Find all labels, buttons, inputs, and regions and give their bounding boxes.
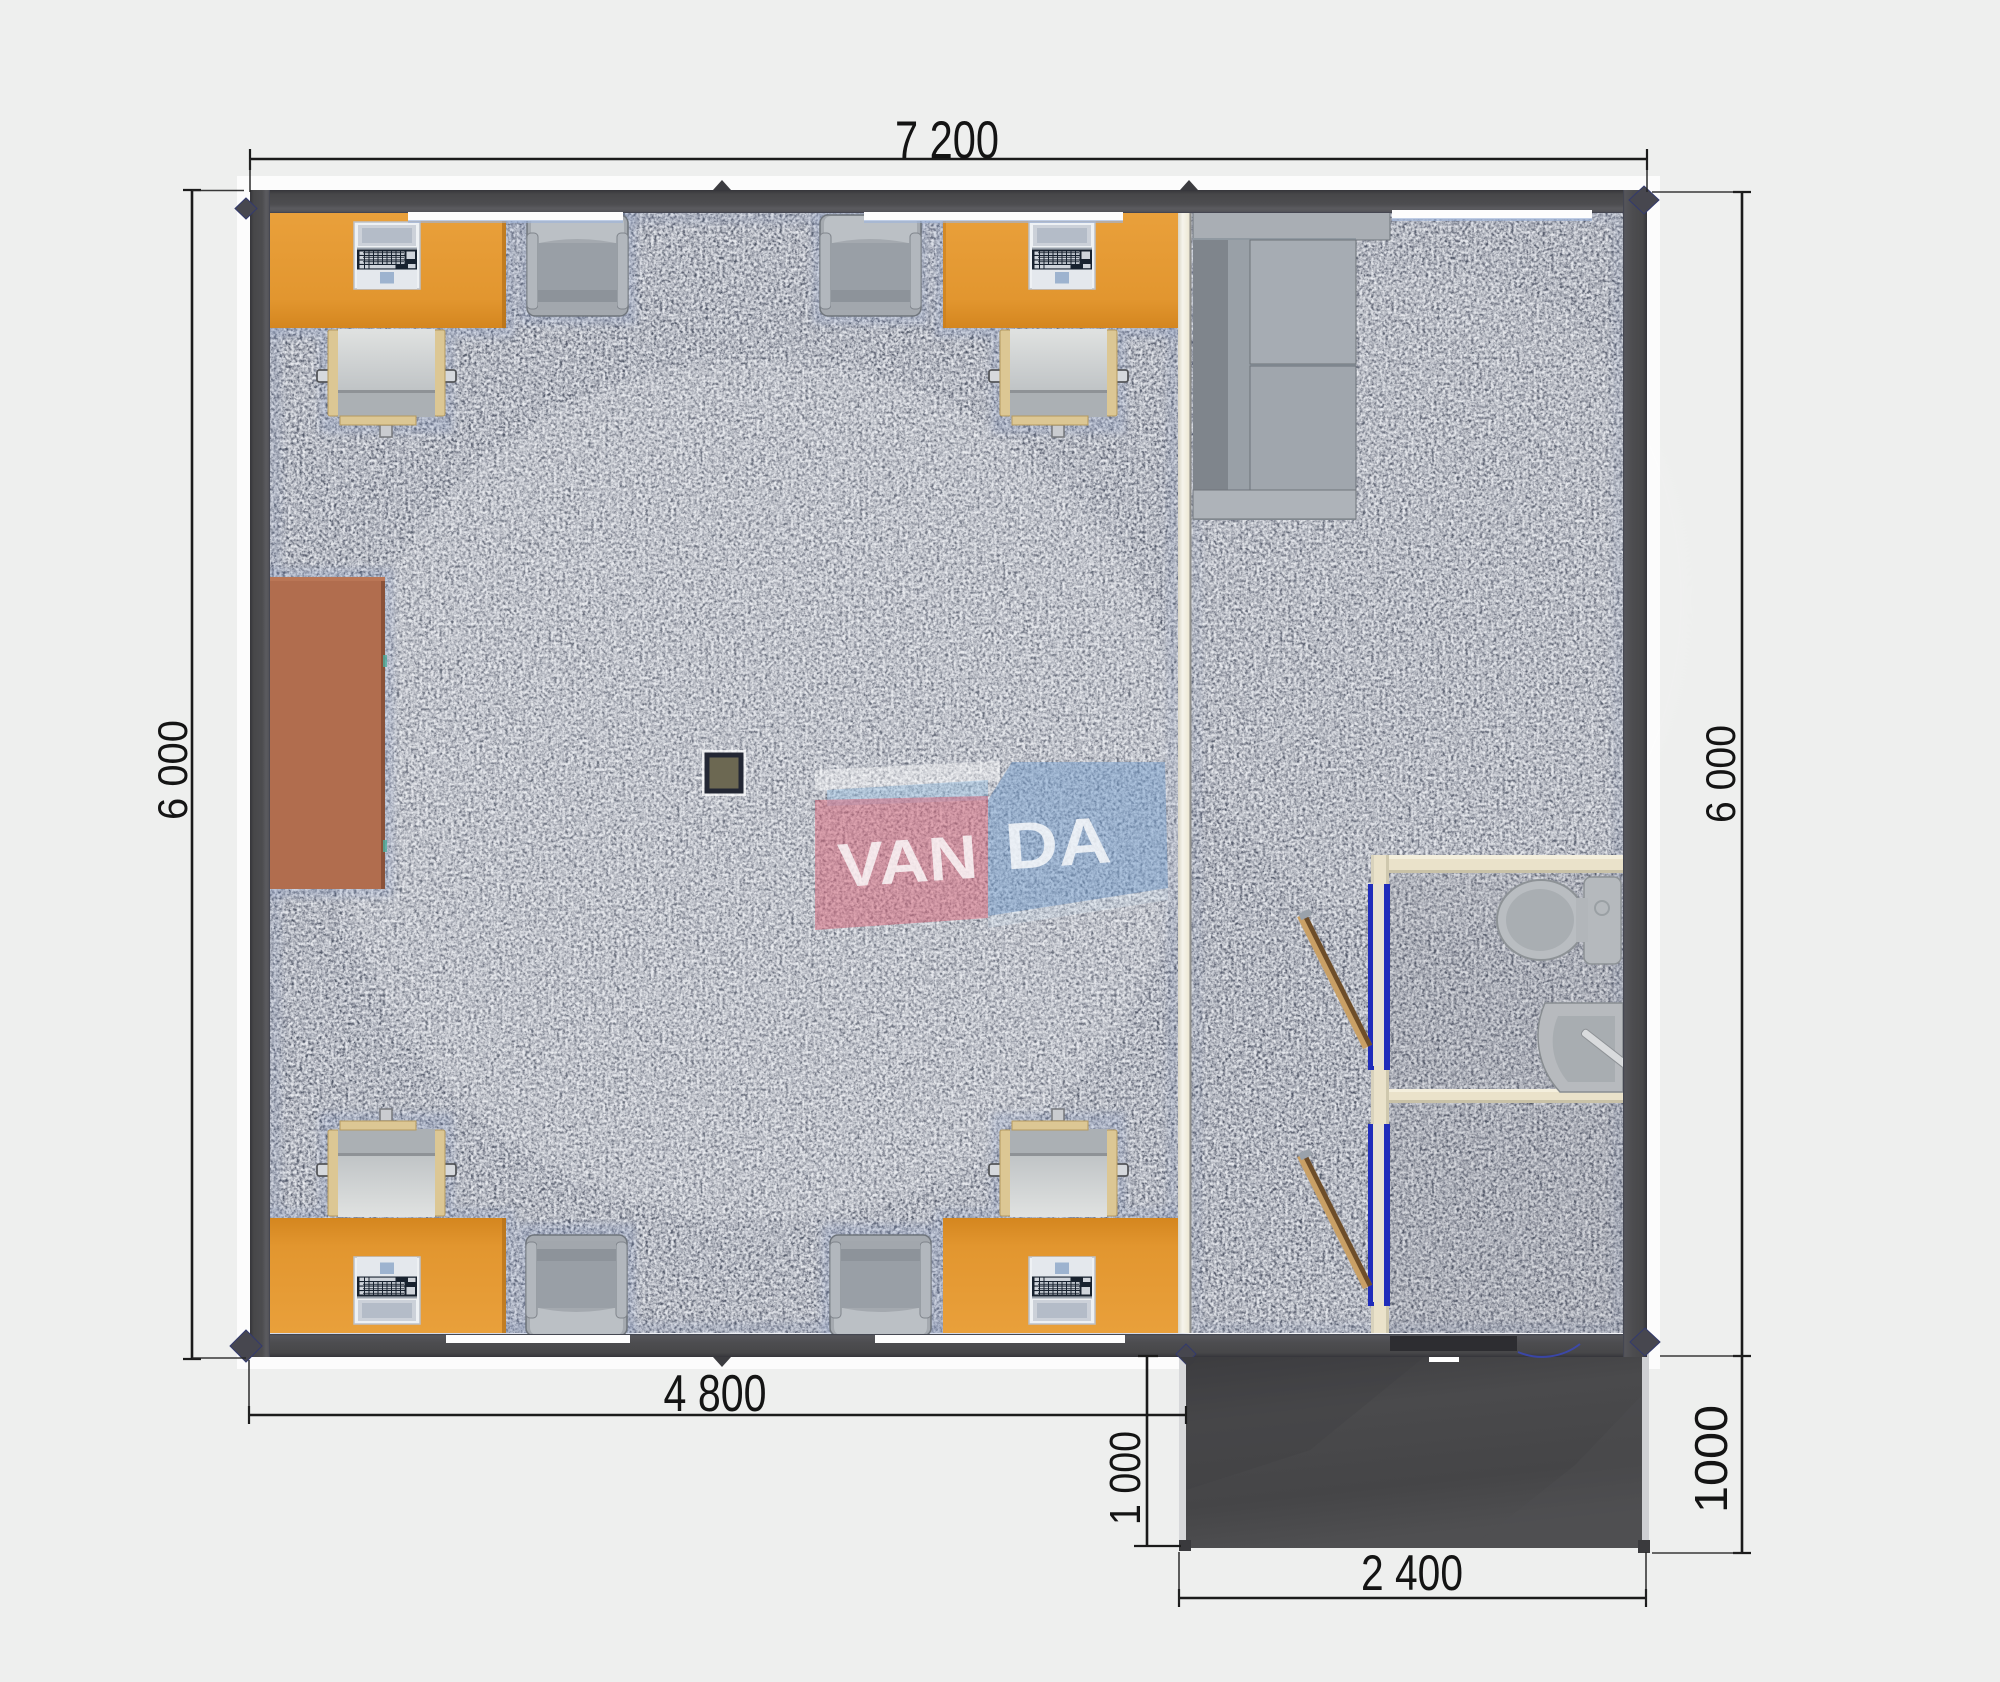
svg-text:1000: 1000 xyxy=(1685,1405,1737,1513)
svg-text:7 200: 7 200 xyxy=(895,111,999,170)
svg-text:VAN: VAN xyxy=(836,823,980,902)
svg-text:1 000: 1 000 xyxy=(1101,1431,1150,1525)
svg-text:4 800: 4 800 xyxy=(664,1365,767,1423)
svg-text:DA: DA xyxy=(1002,802,1113,883)
svg-text:6 000: 6 000 xyxy=(1697,725,1744,823)
svg-text:2 400: 2 400 xyxy=(1361,1545,1463,1601)
svg-text:6 000: 6 000 xyxy=(149,720,196,820)
